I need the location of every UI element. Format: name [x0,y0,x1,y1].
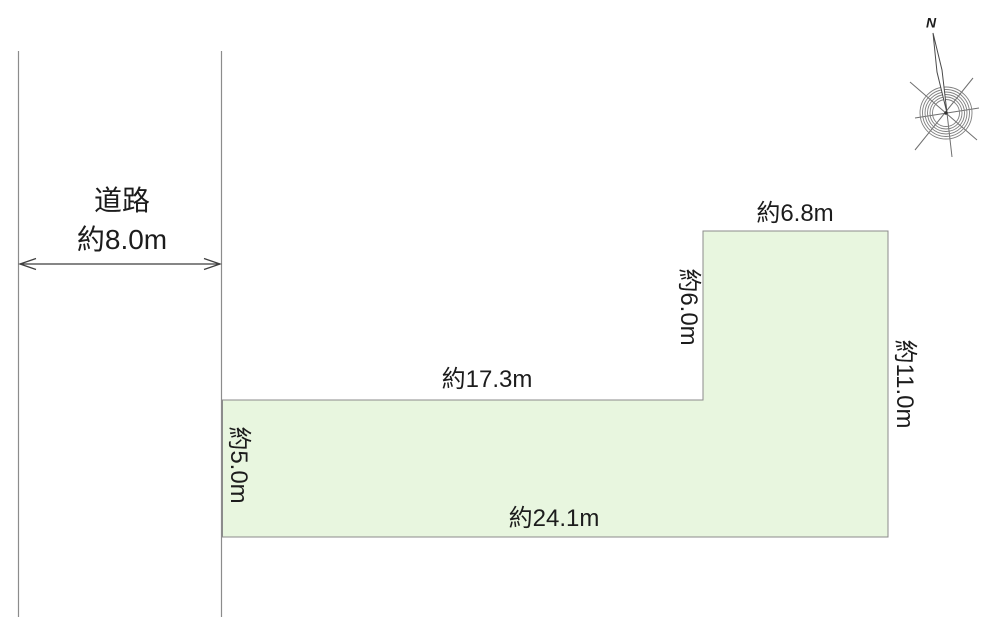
compass-north-label: N [926,15,936,30]
land-plot-plan: 道路 約8.0m 約6.8m 約6.0m 約11.0m 約17.3m 約5.0m… [0,0,1000,638]
road-width-arrow [20,259,220,270]
site-plan-drawing [0,0,1000,638]
road-name: 道路 [77,181,167,220]
dimension-left-lower: 約5.0m [225,426,251,503]
compass-rose-icon [910,33,979,157]
dimension-right: 約11.0m [891,340,917,429]
road-width-dimension: 約8.0m [77,220,167,259]
dimension-top-upper: 約6.8m [756,201,833,227]
dimension-left-upper: 約6.0m [675,268,701,345]
dimension-bottom: 約24.1m [509,506,600,532]
land-plot-shape [223,231,889,537]
dimension-top-lower: 約17.3m [442,367,533,393]
road-label: 道路 約8.0m [77,181,167,259]
